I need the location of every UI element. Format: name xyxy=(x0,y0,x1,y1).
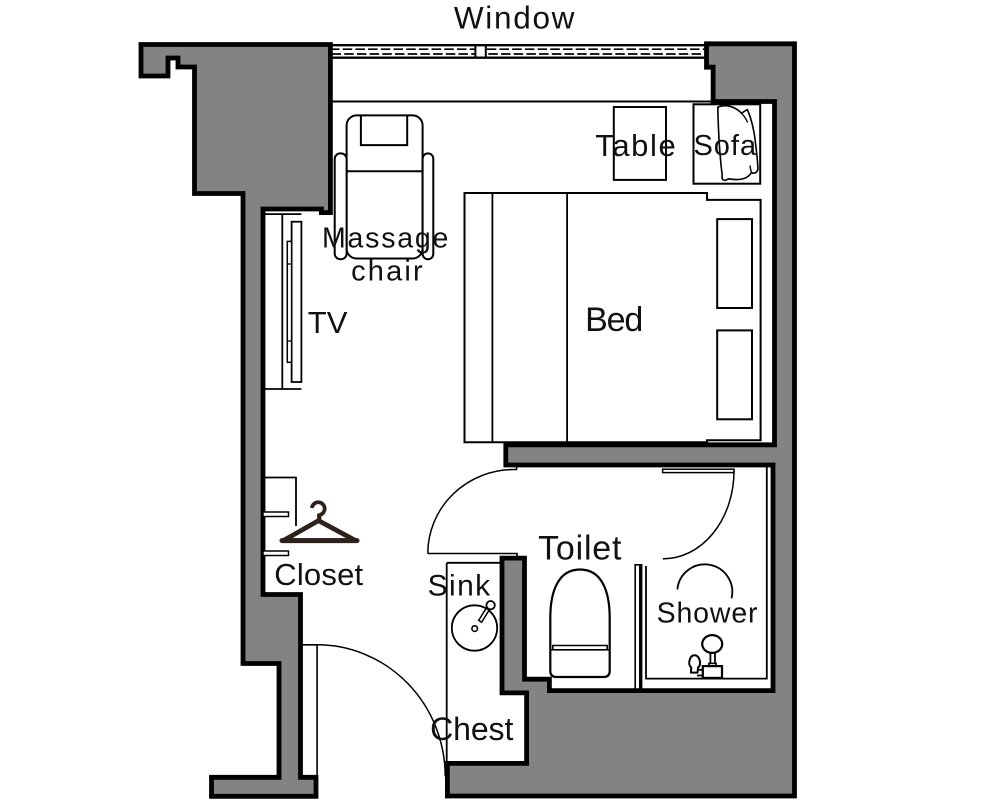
svg-text:Chest: Chest xyxy=(430,711,513,747)
svg-text:Toilet: Toilet xyxy=(538,530,622,568)
svg-text:Closet: Closet xyxy=(274,557,363,592)
svg-text:Sofa: Sofa xyxy=(693,130,757,162)
svg-text:Table: Table xyxy=(595,128,677,163)
svg-text:Bed: Bed xyxy=(585,301,642,339)
svg-text:Sink: Sink xyxy=(428,569,492,602)
svg-text:TV: TV xyxy=(308,305,348,340)
svg-text:Window: Window xyxy=(454,0,576,36)
svg-text:Massage: Massage xyxy=(322,223,450,255)
svg-text:Shower: Shower xyxy=(657,597,759,629)
svg-text:chair: chair xyxy=(351,255,425,287)
